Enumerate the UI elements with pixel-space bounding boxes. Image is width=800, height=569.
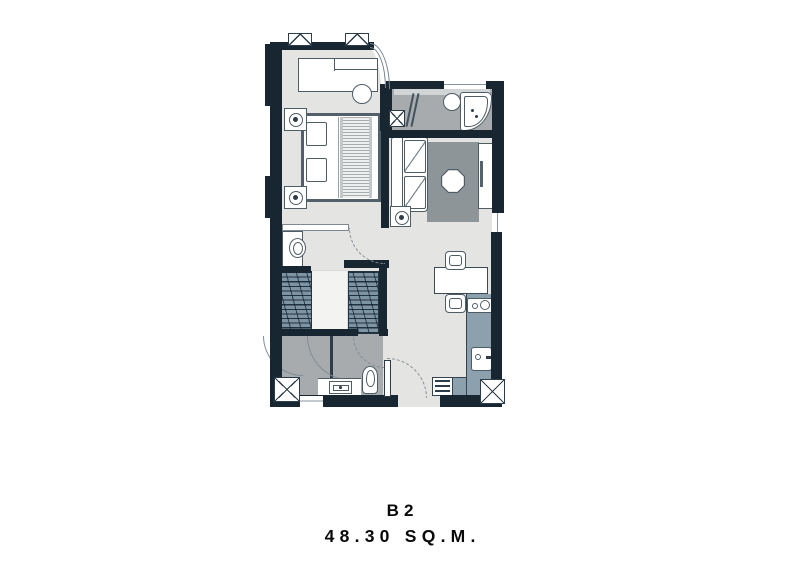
dining-chair-seat bbox=[449, 255, 462, 266]
shoe-cabinet bbox=[432, 377, 453, 396]
desk-chair bbox=[352, 84, 372, 104]
wall bbox=[272, 329, 358, 336]
wall-column bbox=[265, 44, 282, 106]
nightstand bbox=[284, 186, 307, 209]
wall-stub bbox=[379, 329, 388, 336]
dining-chair bbox=[445, 294, 466, 313]
unit-name: B2 bbox=[387, 501, 419, 520]
window-vent-icon bbox=[345, 33, 369, 46]
floor-plan-page: B2 48.30 SQ.M. bbox=[0, 0, 800, 569]
lamp-icon bbox=[293, 195, 298, 200]
wall-stub bbox=[281, 266, 311, 273]
sink-drain-dot bbox=[339, 386, 342, 389]
sofa-cushion bbox=[404, 140, 426, 173]
sofa-back-line bbox=[402, 138, 403, 210]
curved-glass-wall bbox=[370, 47, 386, 88]
wardrobe bbox=[348, 271, 379, 334]
wardrobe bbox=[281, 271, 312, 334]
wall bbox=[379, 264, 387, 336]
wash-basin bbox=[443, 93, 461, 111]
coffee-table-top bbox=[442, 170, 464, 192]
kitchen-sink-drain bbox=[475, 354, 481, 360]
shower-door-swing bbox=[263, 336, 303, 376]
sofa-cushion bbox=[404, 176, 426, 209]
lamp-icon bbox=[399, 215, 404, 220]
pillow bbox=[306, 158, 327, 182]
wall bbox=[381, 130, 389, 228]
window-vent-icon bbox=[288, 33, 312, 46]
entrance-door-leaf bbox=[384, 360, 391, 397]
dining-table bbox=[434, 267, 488, 294]
shower-control-dot bbox=[471, 109, 474, 112]
coffee-table bbox=[441, 169, 465, 193]
walk-in-closet-floor bbox=[311, 270, 348, 334]
side-table bbox=[390, 206, 411, 227]
bed-duvet bbox=[340, 117, 372, 198]
unit-area: 48.30 SQ.M. bbox=[0, 526, 800, 547]
nightstand bbox=[284, 108, 307, 131]
pillow bbox=[306, 122, 327, 146]
window bbox=[493, 213, 503, 232]
toilet-bowl bbox=[366, 370, 375, 387]
dining-chair-seat bbox=[449, 298, 462, 309]
vanity-basin-inner bbox=[293, 242, 303, 255]
window bbox=[300, 396, 323, 407]
shower-control-dot bbox=[475, 115, 478, 118]
floor-plan bbox=[0, 0, 800, 569]
unit-label-block: B2 48.30 SQ.M. bbox=[0, 501, 800, 547]
dining-chair bbox=[445, 251, 466, 270]
bed-mattress-line bbox=[338, 117, 339, 198]
wall bbox=[384, 130, 494, 138]
vanity-basin bbox=[289, 238, 306, 258]
shaft-column-icon bbox=[274, 377, 300, 402]
stove-burner bbox=[480, 300, 490, 310]
cabinet-shelves bbox=[435, 380, 450, 393]
stove-burner bbox=[472, 303, 478, 309]
shaft-column-icon bbox=[389, 110, 405, 127]
partition-wall bbox=[282, 224, 349, 231]
window bbox=[444, 81, 486, 89]
wall-column bbox=[265, 176, 282, 218]
wall bbox=[492, 84, 504, 213]
tv-icon bbox=[480, 161, 483, 187]
toilet bbox=[362, 366, 378, 394]
lamp-icon bbox=[293, 117, 298, 122]
wall bbox=[491, 232, 502, 398]
kitchen-sink bbox=[471, 347, 492, 371]
shaft-column-icon bbox=[480, 379, 505, 404]
